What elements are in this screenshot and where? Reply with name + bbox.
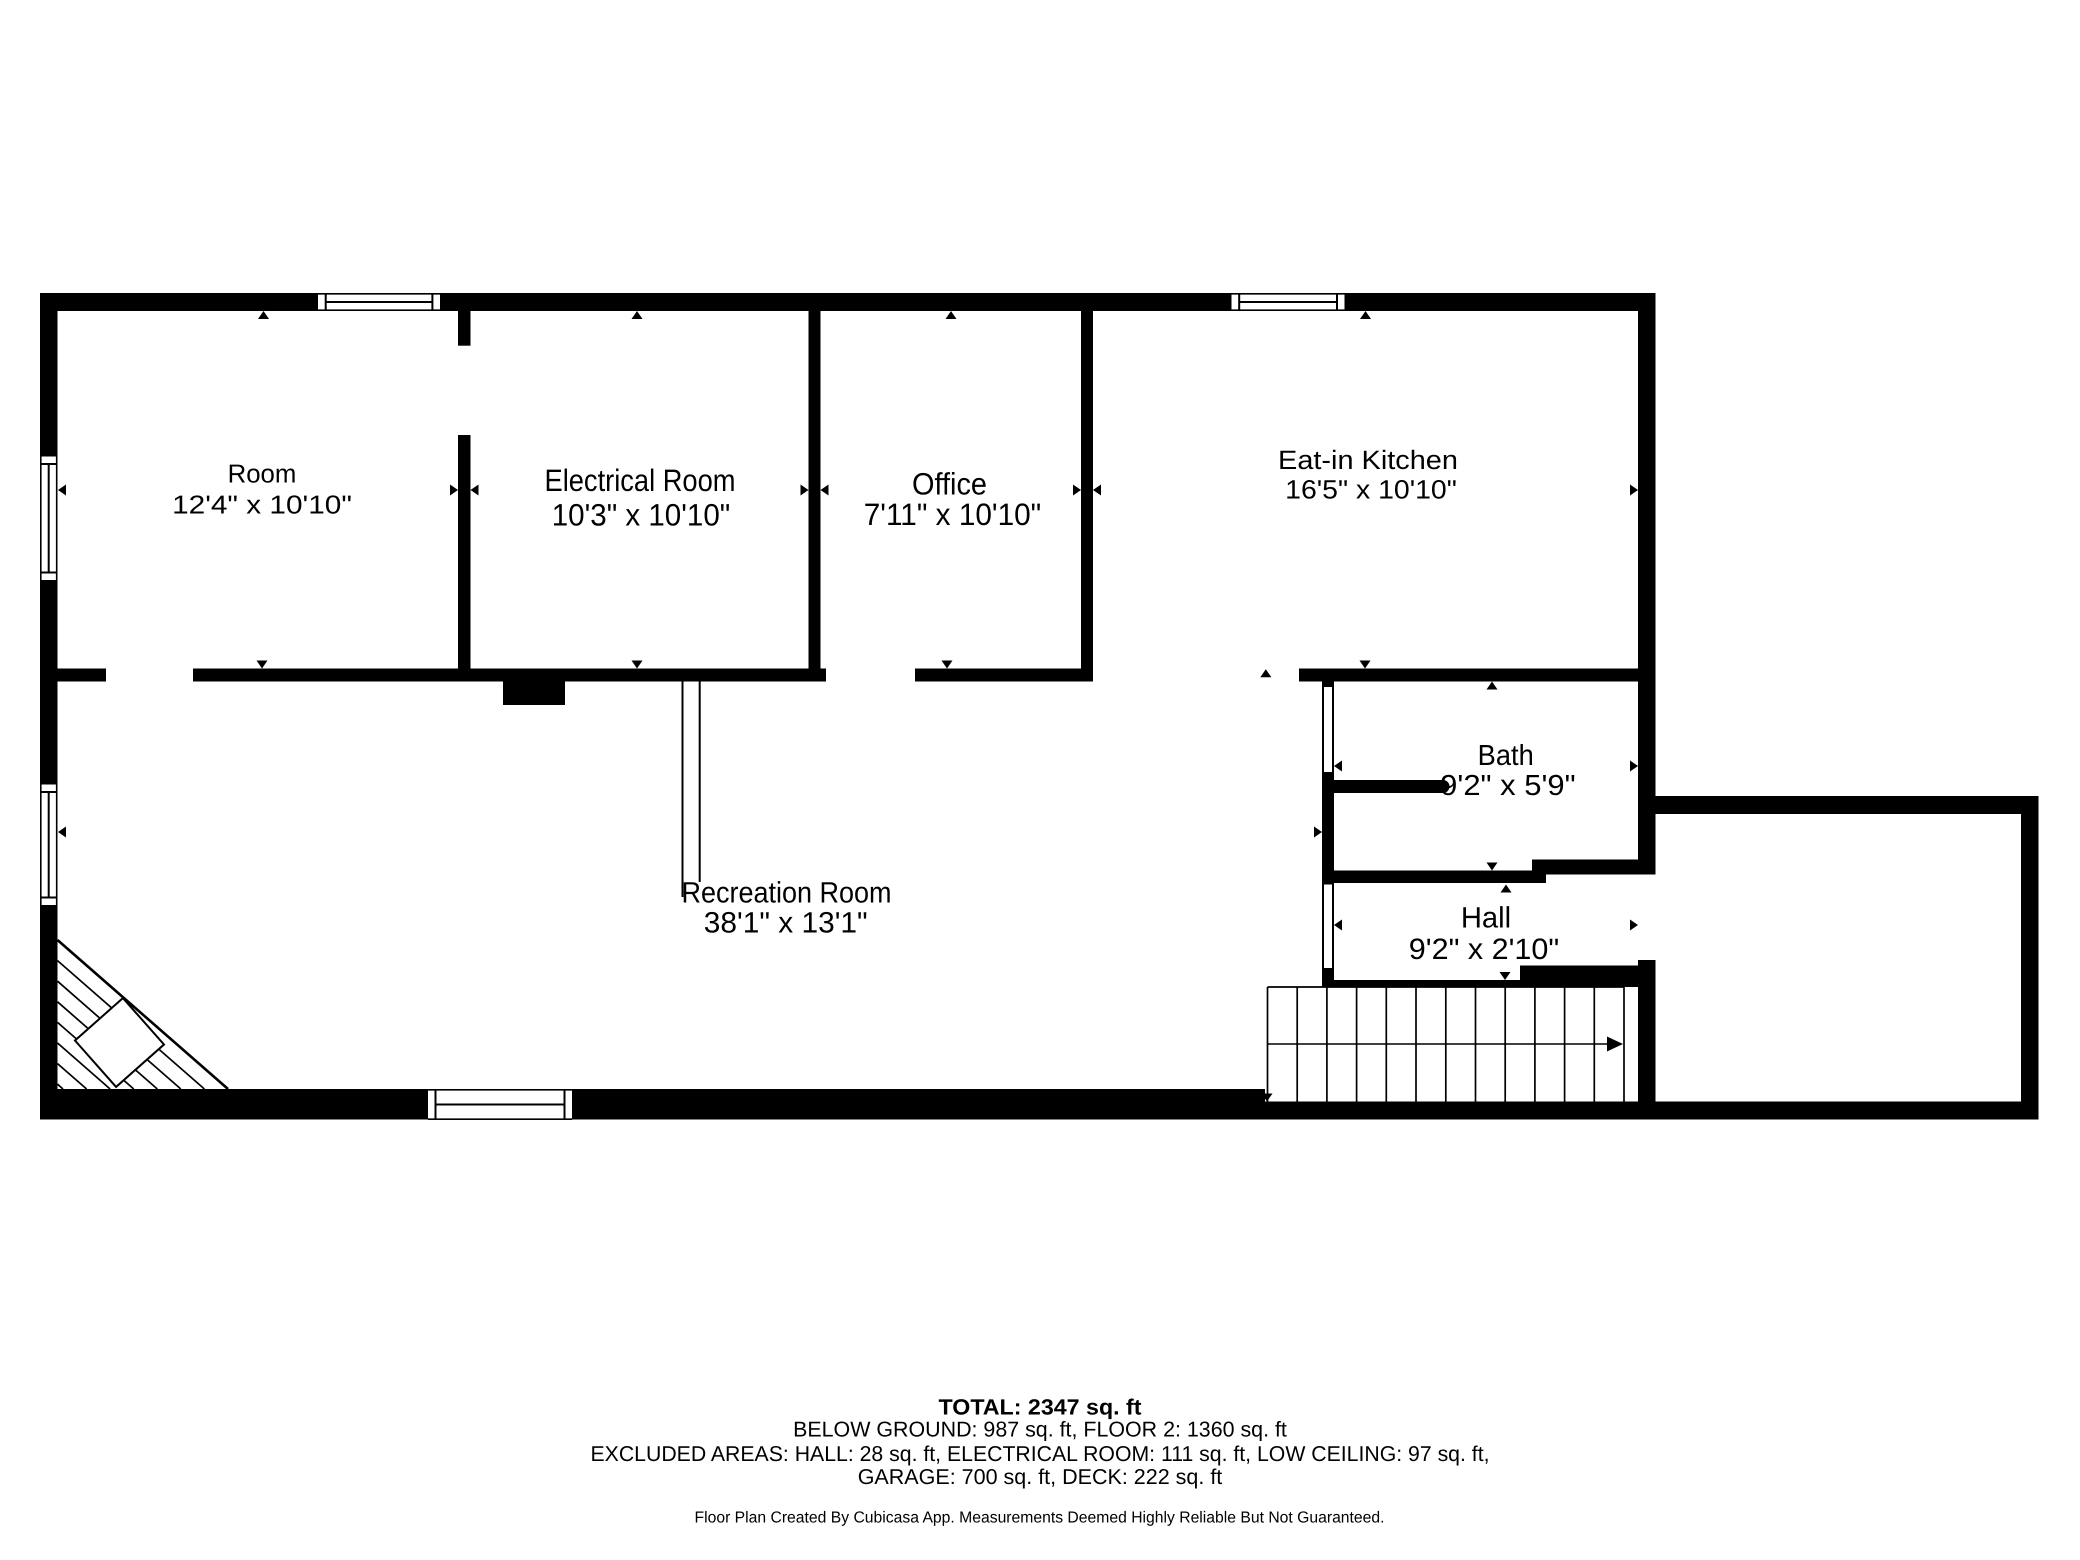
svg-text:12'4" x 10'10": 12'4" x 10'10": [172, 490, 352, 520]
svg-text:16'5" x 10'10": 16'5" x 10'10": [1285, 475, 1457, 505]
svg-text:Recreation Room: Recreation Room: [682, 877, 892, 910]
svg-text:TOTAL: 2347 sq. ft: TOTAL: 2347 sq. ft: [939, 1395, 1143, 1420]
svg-text:Hall: Hall: [1461, 902, 1511, 935]
svg-text:7'11" x 10'10": 7'11" x 10'10": [864, 497, 1042, 532]
svg-text:BELOW GROUND: 987 sq. ft, FLOO: BELOW GROUND: 987 sq. ft, FLOOR 2: 1360 …: [793, 1417, 1287, 1441]
svg-text:9'2" x 5'9": 9'2" x 5'9": [1440, 770, 1575, 802]
svg-text:Eat-in Kitchen: Eat-in Kitchen: [1278, 445, 1458, 475]
svg-text:38'1" x 13'1": 38'1" x 13'1": [704, 907, 868, 940]
svg-text:9'2" x 2'10": 9'2" x 2'10": [1409, 933, 1559, 966]
svg-text:Floor Plan Created By Cubicasa: Floor Plan Created By Cubicasa App. Meas…: [695, 1509, 1385, 1526]
svg-text:Electrical Room: Electrical Room: [545, 463, 736, 498]
svg-text:10'3" x 10'10": 10'3" x 10'10": [552, 497, 731, 532]
svg-text:GARAGE: 700 sq. ft, DECK: 222: GARAGE: 700 sq. ft, DECK: 222 sq. ft: [858, 1465, 1223, 1489]
svg-text:Room: Room: [228, 459, 297, 489]
svg-text:Bath: Bath: [1478, 740, 1534, 772]
svg-text:EXCLUDED AREAS: HALL: 28 sq. f: EXCLUDED AREAS: HALL: 28 sq. ft, ELECTRI…: [591, 1442, 1490, 1466]
